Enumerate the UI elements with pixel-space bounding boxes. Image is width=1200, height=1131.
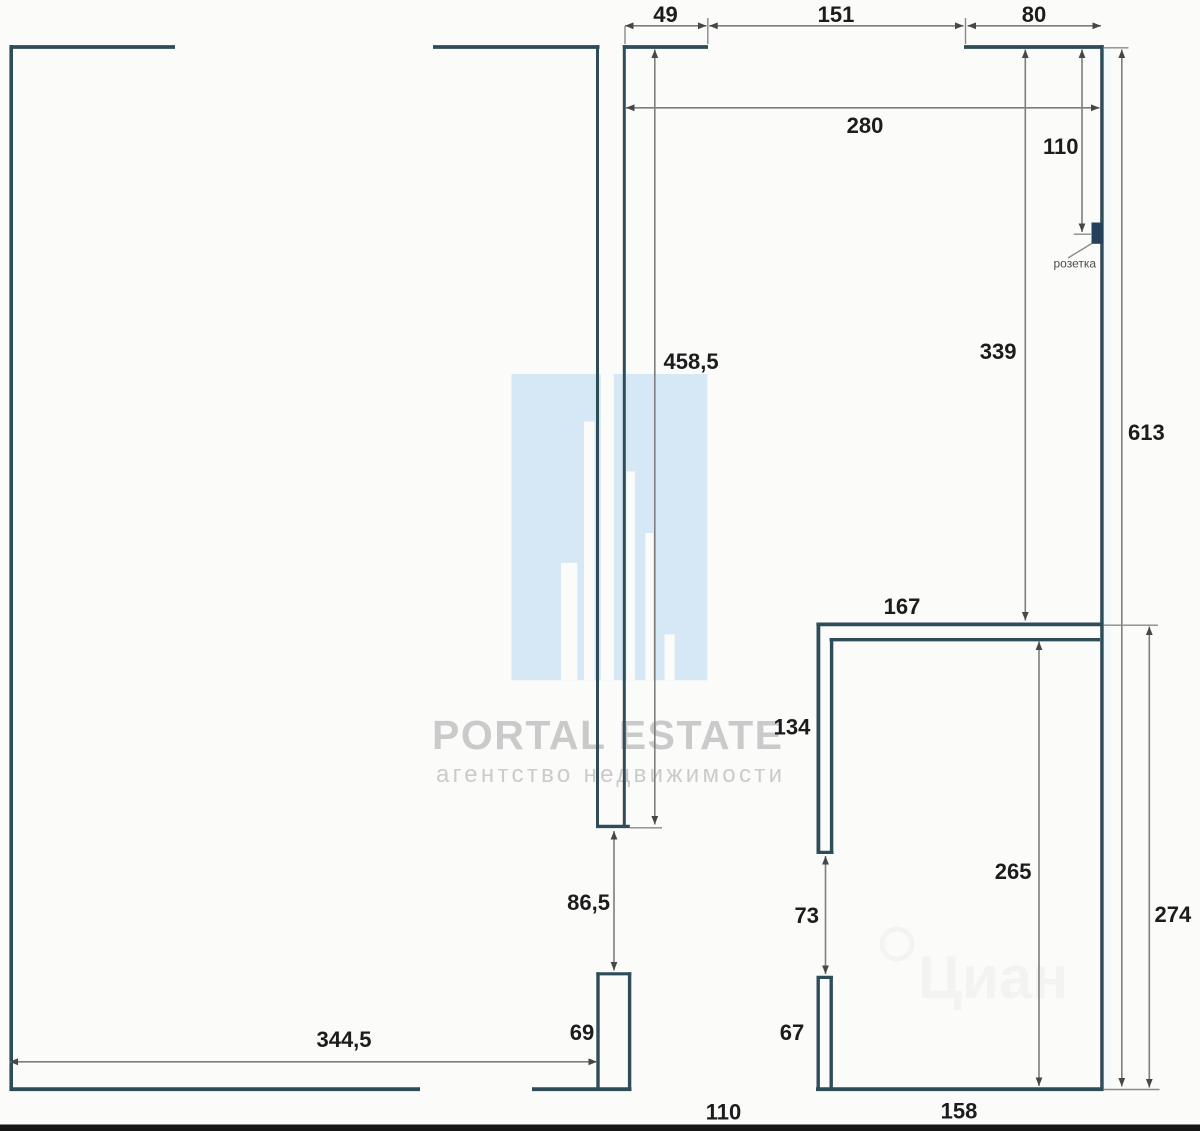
svg-text:агентство недвижимости: агентство недвижимости	[436, 761, 782, 788]
svg-text:PORTAL ESTATE: PORTAL ESTATE	[432, 712, 782, 758]
svg-text:110: 110	[1043, 134, 1079, 159]
svg-text:280: 280	[847, 113, 884, 138]
svg-text:73: 73	[795, 903, 819, 928]
svg-text:розетка: розетка	[1054, 257, 1097, 271]
svg-text:458,5: 458,5	[664, 349, 719, 374]
svg-text:613: 613	[1128, 420, 1165, 445]
svg-text:274: 274	[1155, 902, 1192, 927]
svg-text:Циан: Циан	[918, 944, 1068, 1011]
svg-text:80: 80	[1022, 2, 1046, 27]
svg-text:167: 167	[884, 594, 921, 619]
svg-text:339: 339	[980, 339, 1017, 364]
svg-text:69: 69	[570, 1020, 594, 1045]
svg-text:158: 158	[941, 1099, 978, 1124]
svg-text:265: 265	[995, 859, 1032, 884]
svg-text:86,5: 86,5	[567, 890, 610, 915]
svg-text:110: 110	[706, 1100, 742, 1125]
svg-text:344,5: 344,5	[316, 1027, 371, 1052]
svg-text:151: 151	[818, 2, 855, 27]
svg-text:49: 49	[653, 2, 677, 27]
svg-text:67: 67	[780, 1020, 804, 1045]
svg-text:134: 134	[774, 715, 811, 740]
